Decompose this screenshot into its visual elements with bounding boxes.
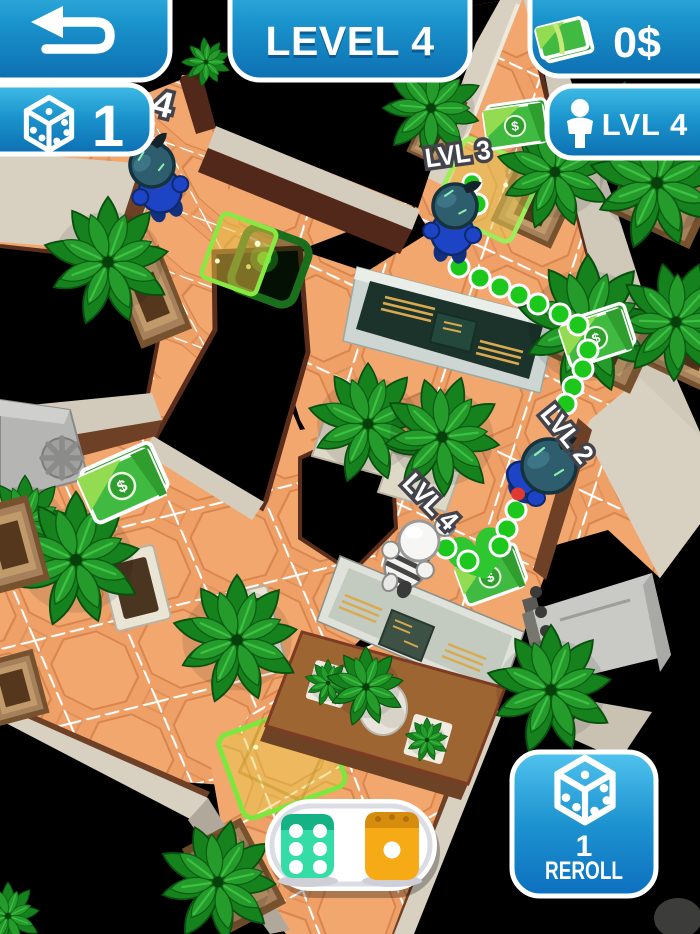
svg-text:LEVEL 4: LEVEL 4 [265, 18, 434, 64]
svg-text:1: 1 [92, 94, 124, 159]
svg-text:REROLL: REROLL [545, 857, 623, 885]
svg-text:0$: 0$ [613, 19, 661, 67]
svg-text:LVL 4: LVL 4 [602, 107, 689, 142]
